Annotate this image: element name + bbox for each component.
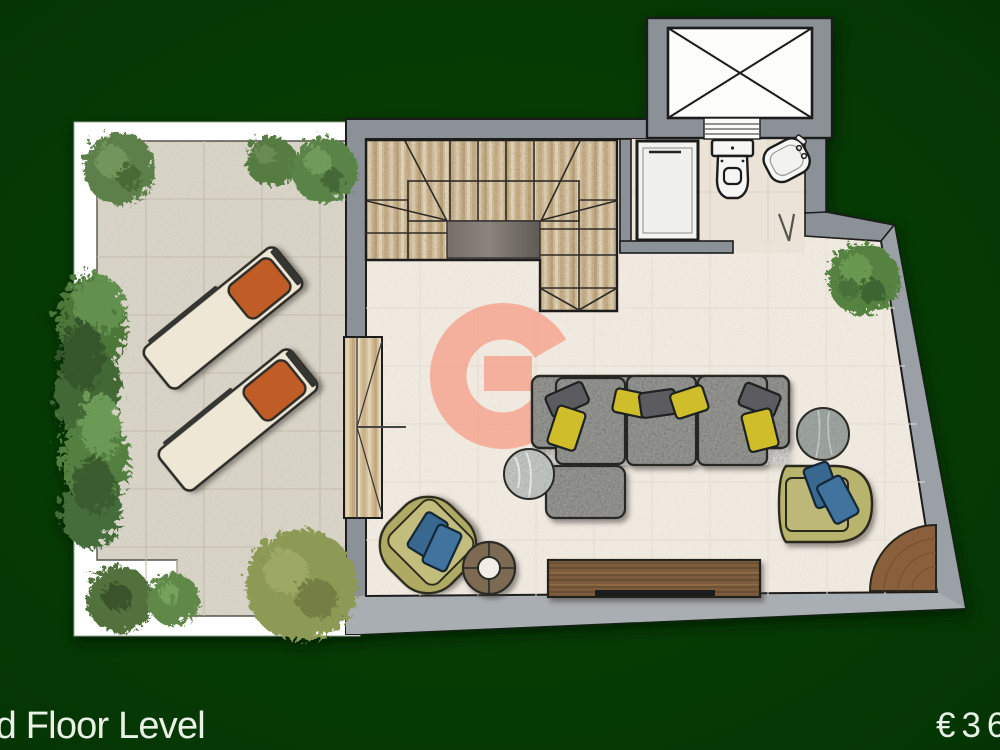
svg-text:2nd Floor Level: 2nd Floor Level (0, 705, 205, 747)
svg-text:€365,000: €365,000 (936, 706, 1000, 745)
